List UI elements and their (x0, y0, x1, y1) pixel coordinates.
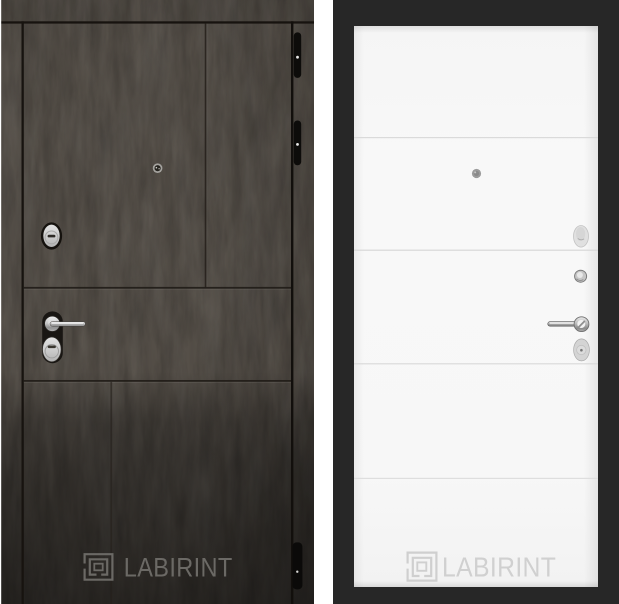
svg-text:LABIRINT: LABIRINT (124, 553, 233, 583)
svg-text:LABIRINT: LABIRINT (442, 551, 556, 583)
